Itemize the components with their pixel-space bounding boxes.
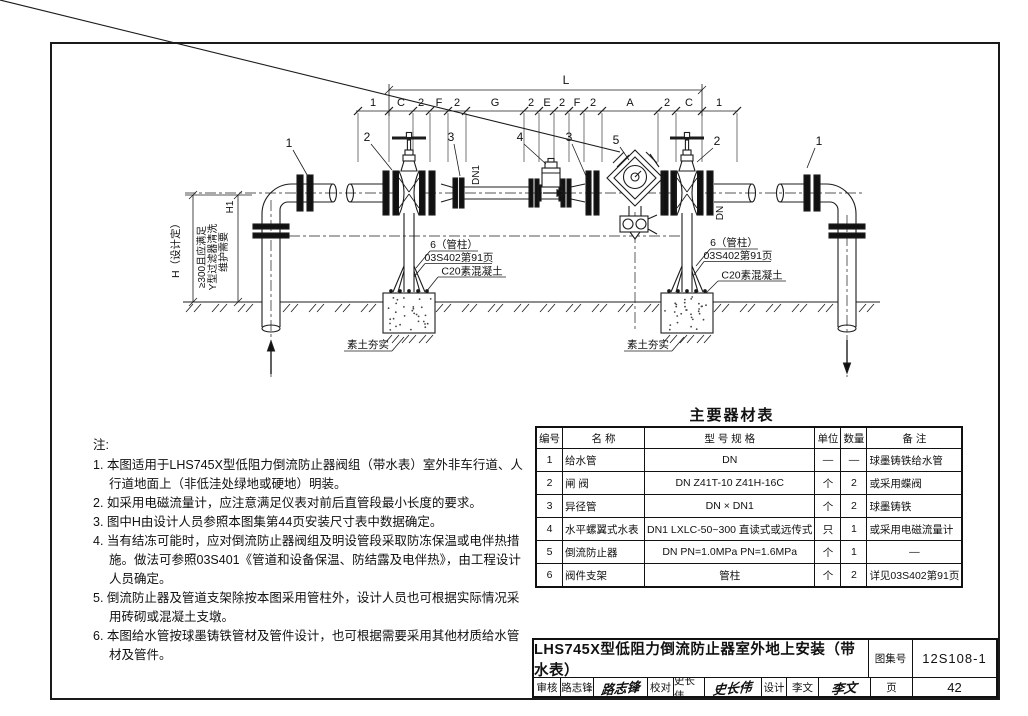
svg-text:5: 5 bbox=[613, 133, 620, 147]
table-row: 6阀件支架 管柱个 2详见03S402第91页 bbox=[536, 564, 962, 588]
gate-valve-right bbox=[661, 133, 713, 216]
clearance-note-line2: Y型过滤器清洗 bbox=[206, 224, 219, 291]
note-item: 6. 本图给水管按球墨铸铁管材及管件设计，也可根据需要采用其他材质给水管材及管件… bbox=[93, 627, 527, 665]
note-item: 5. 倒流防止器及管道支架除按本图采用管柱外，设计人员也可根据实际情况采用砖砌或… bbox=[93, 589, 527, 627]
svg-text:2: 2 bbox=[528, 97, 534, 109]
checker-label: 校对 bbox=[648, 678, 674, 697]
dim-label-h: H（设计定） bbox=[169, 218, 182, 278]
col-header-no: 编号 bbox=[536, 427, 563, 449]
reviewer-label: 审核 bbox=[534, 678, 561, 697]
drawing-title: LHS745X型低阻力倒流防止器室外地上安装（带水表） bbox=[534, 640, 869, 677]
pipe-label-dn1: DN1 bbox=[471, 165, 482, 185]
concrete-stipple bbox=[388, 296, 707, 331]
ground-line bbox=[183, 302, 880, 343]
clearance-note-line1: ≥300且应满足 bbox=[195, 226, 208, 288]
table-row: 5倒流防止器 DN PN=1.0MPa PN=1.6MPa个 1— bbox=[536, 541, 962, 564]
reviewer-signature: 路志锋 bbox=[594, 678, 648, 697]
svg-text:C: C bbox=[685, 97, 693, 109]
svg-text:2: 2 bbox=[559, 97, 565, 109]
svg-text:2: 2 bbox=[364, 130, 371, 144]
svg-text:A: A bbox=[626, 97, 634, 109]
table-row: 3异径管 DN × DN1个 2球墨铸铁 bbox=[536, 495, 962, 518]
dim-segment-labels: 1 C 2 F 2 G 2 E 2 F 2 A 2 C 1 bbox=[370, 97, 722, 109]
col-header-unit: 单位 bbox=[815, 427, 841, 449]
support-note-left-1: 6（管柱） bbox=[430, 238, 478, 251]
title-block-row1: LHS745X型低阻力倒流防止器室外地上安装（带水表） 图集号 12S108-1 bbox=[534, 640, 996, 678]
dim-label-h1: H1 bbox=[225, 200, 236, 213]
svg-text:3: 3 bbox=[448, 130, 455, 144]
svg-text:G: G bbox=[491, 97, 500, 109]
note-item: 1. 本图适用于LHS745X型低阻力倒流防止器阀组（带水表）室外非车行道、人行… bbox=[93, 456, 527, 494]
svg-text:1: 1 bbox=[370, 97, 376, 109]
svg-text:2: 2 bbox=[454, 97, 460, 109]
svg-text:4: 4 bbox=[517, 130, 524, 144]
title-block-row2: 审核 路志锋 路志锋 校对 史长伟 史长伟 设计 李文 李文 页 42 bbox=[534, 678, 996, 697]
notes-title: 注: bbox=[93, 436, 527, 455]
svg-text:1: 1 bbox=[816, 134, 823, 148]
clearance-note-line3: 维护需要 bbox=[217, 232, 230, 272]
designer-label: 设计 bbox=[762, 678, 787, 697]
atlas-page: L 1 C 2 F 2 G 2 E 2 F 2 A 2 C 1 bbox=[0, 0, 1028, 716]
svg-text:E: E bbox=[543, 97, 550, 109]
checker-signature: 史长伟 bbox=[705, 678, 762, 697]
page-number: 42 bbox=[913, 678, 996, 697]
table-row: 1给水管 DN— —球墨铸铁给水管 bbox=[536, 449, 962, 472]
left-elbow-pipe bbox=[253, 175, 337, 374]
equipment-table: 编号 名 称 型 号 规 格 单位 数量 备 注 1给水管 DN— —球墨铸铁给… bbox=[535, 426, 963, 588]
col-header-remark: 备 注 bbox=[867, 427, 962, 449]
equipment-table-title: 主要器材表 bbox=[535, 404, 929, 425]
svg-text:1: 1 bbox=[286, 136, 293, 150]
pipe-column-support-left bbox=[383, 213, 435, 333]
soil-label-left: 素土夯实 bbox=[347, 338, 389, 351]
page-label: 页 bbox=[871, 678, 913, 697]
title-block: LHS745X型低阻力倒流防止器室外地上安装（带水表） 图集号 12S108-1… bbox=[532, 638, 998, 698]
checker-name: 史长伟 bbox=[674, 678, 705, 697]
designer-signature: 李文 bbox=[819, 678, 871, 697]
svg-text:2: 2 bbox=[590, 97, 596, 109]
centerlines bbox=[185, 193, 864, 380]
table-header-row: 编号 名 称 型 号 规 格 单位 数量 备 注 bbox=[536, 427, 962, 449]
reviewer-name: 路志锋 bbox=[561, 678, 594, 697]
svg-text:2: 2 bbox=[664, 97, 670, 109]
pipe-label-dn: DN bbox=[715, 206, 726, 220]
general-notes: 注: 1. 本图适用于LHS745X型低阻力倒流防止器阀组（带水表）室外非车行道… bbox=[93, 436, 527, 665]
designer-name: 李文 bbox=[787, 678, 819, 697]
svg-text:3: 3 bbox=[566, 130, 573, 144]
atlas-no-label: 图集号 bbox=[869, 640, 913, 677]
support-note-right-2: 03S402第91页 bbox=[704, 249, 773, 262]
support-note-right-3: C20素混凝土 bbox=[721, 269, 782, 282]
svg-text:1: 1 bbox=[716, 97, 722, 109]
table-row: 2闸 阀 DN Z41T-10 Z41H-16C个 2或采用蝶阀 bbox=[536, 472, 962, 495]
diagram-linework: L 1 C 2 F 2 G 2 E 2 F 2 A 2 C 1 bbox=[0, 0, 880, 380]
support-note-right-1: 6（管柱） bbox=[710, 236, 758, 249]
col-header-name: 名 称 bbox=[563, 427, 645, 449]
right-elbow-pipe bbox=[804, 175, 865, 373]
dim-label-overall: L bbox=[563, 73, 570, 87]
col-header-qty: 数量 bbox=[841, 427, 867, 449]
svg-text:2: 2 bbox=[714, 134, 721, 148]
gate-valve-left bbox=[383, 133, 435, 216]
note-item: 2. 如采用电磁流量计，应注意满足仪表对前后直管段最小长度的要求。 bbox=[93, 494, 527, 513]
outflow-arrow bbox=[844, 363, 851, 373]
svg-text:F: F bbox=[574, 97, 581, 109]
note-item: 4. 当有结冻可能时，应对倒流防止器阀组及明设管段采取防冻保温或电伴热措施。做法… bbox=[93, 532, 527, 589]
col-header-model: 型 号 规 格 bbox=[645, 427, 815, 449]
table-row: 4水平螺翼式水表 DN1 LXLC-50~300 直读式或远传式只 1或采用电磁… bbox=[536, 518, 962, 541]
support-note-left-2: 03S402第91页 bbox=[425, 251, 494, 264]
note-item: 3. 图中H由设计人员参照本图集第44页安装尺寸表中数据确定。 bbox=[93, 513, 527, 532]
inflow-arrow bbox=[268, 341, 275, 351]
pipe-column-support-right bbox=[661, 213, 713, 333]
soil-label-right: 素土夯实 bbox=[627, 338, 669, 351]
atlas-no-value: 12S108-1 bbox=[913, 640, 996, 677]
support-note-left-3: C20素混凝土 bbox=[441, 265, 502, 278]
